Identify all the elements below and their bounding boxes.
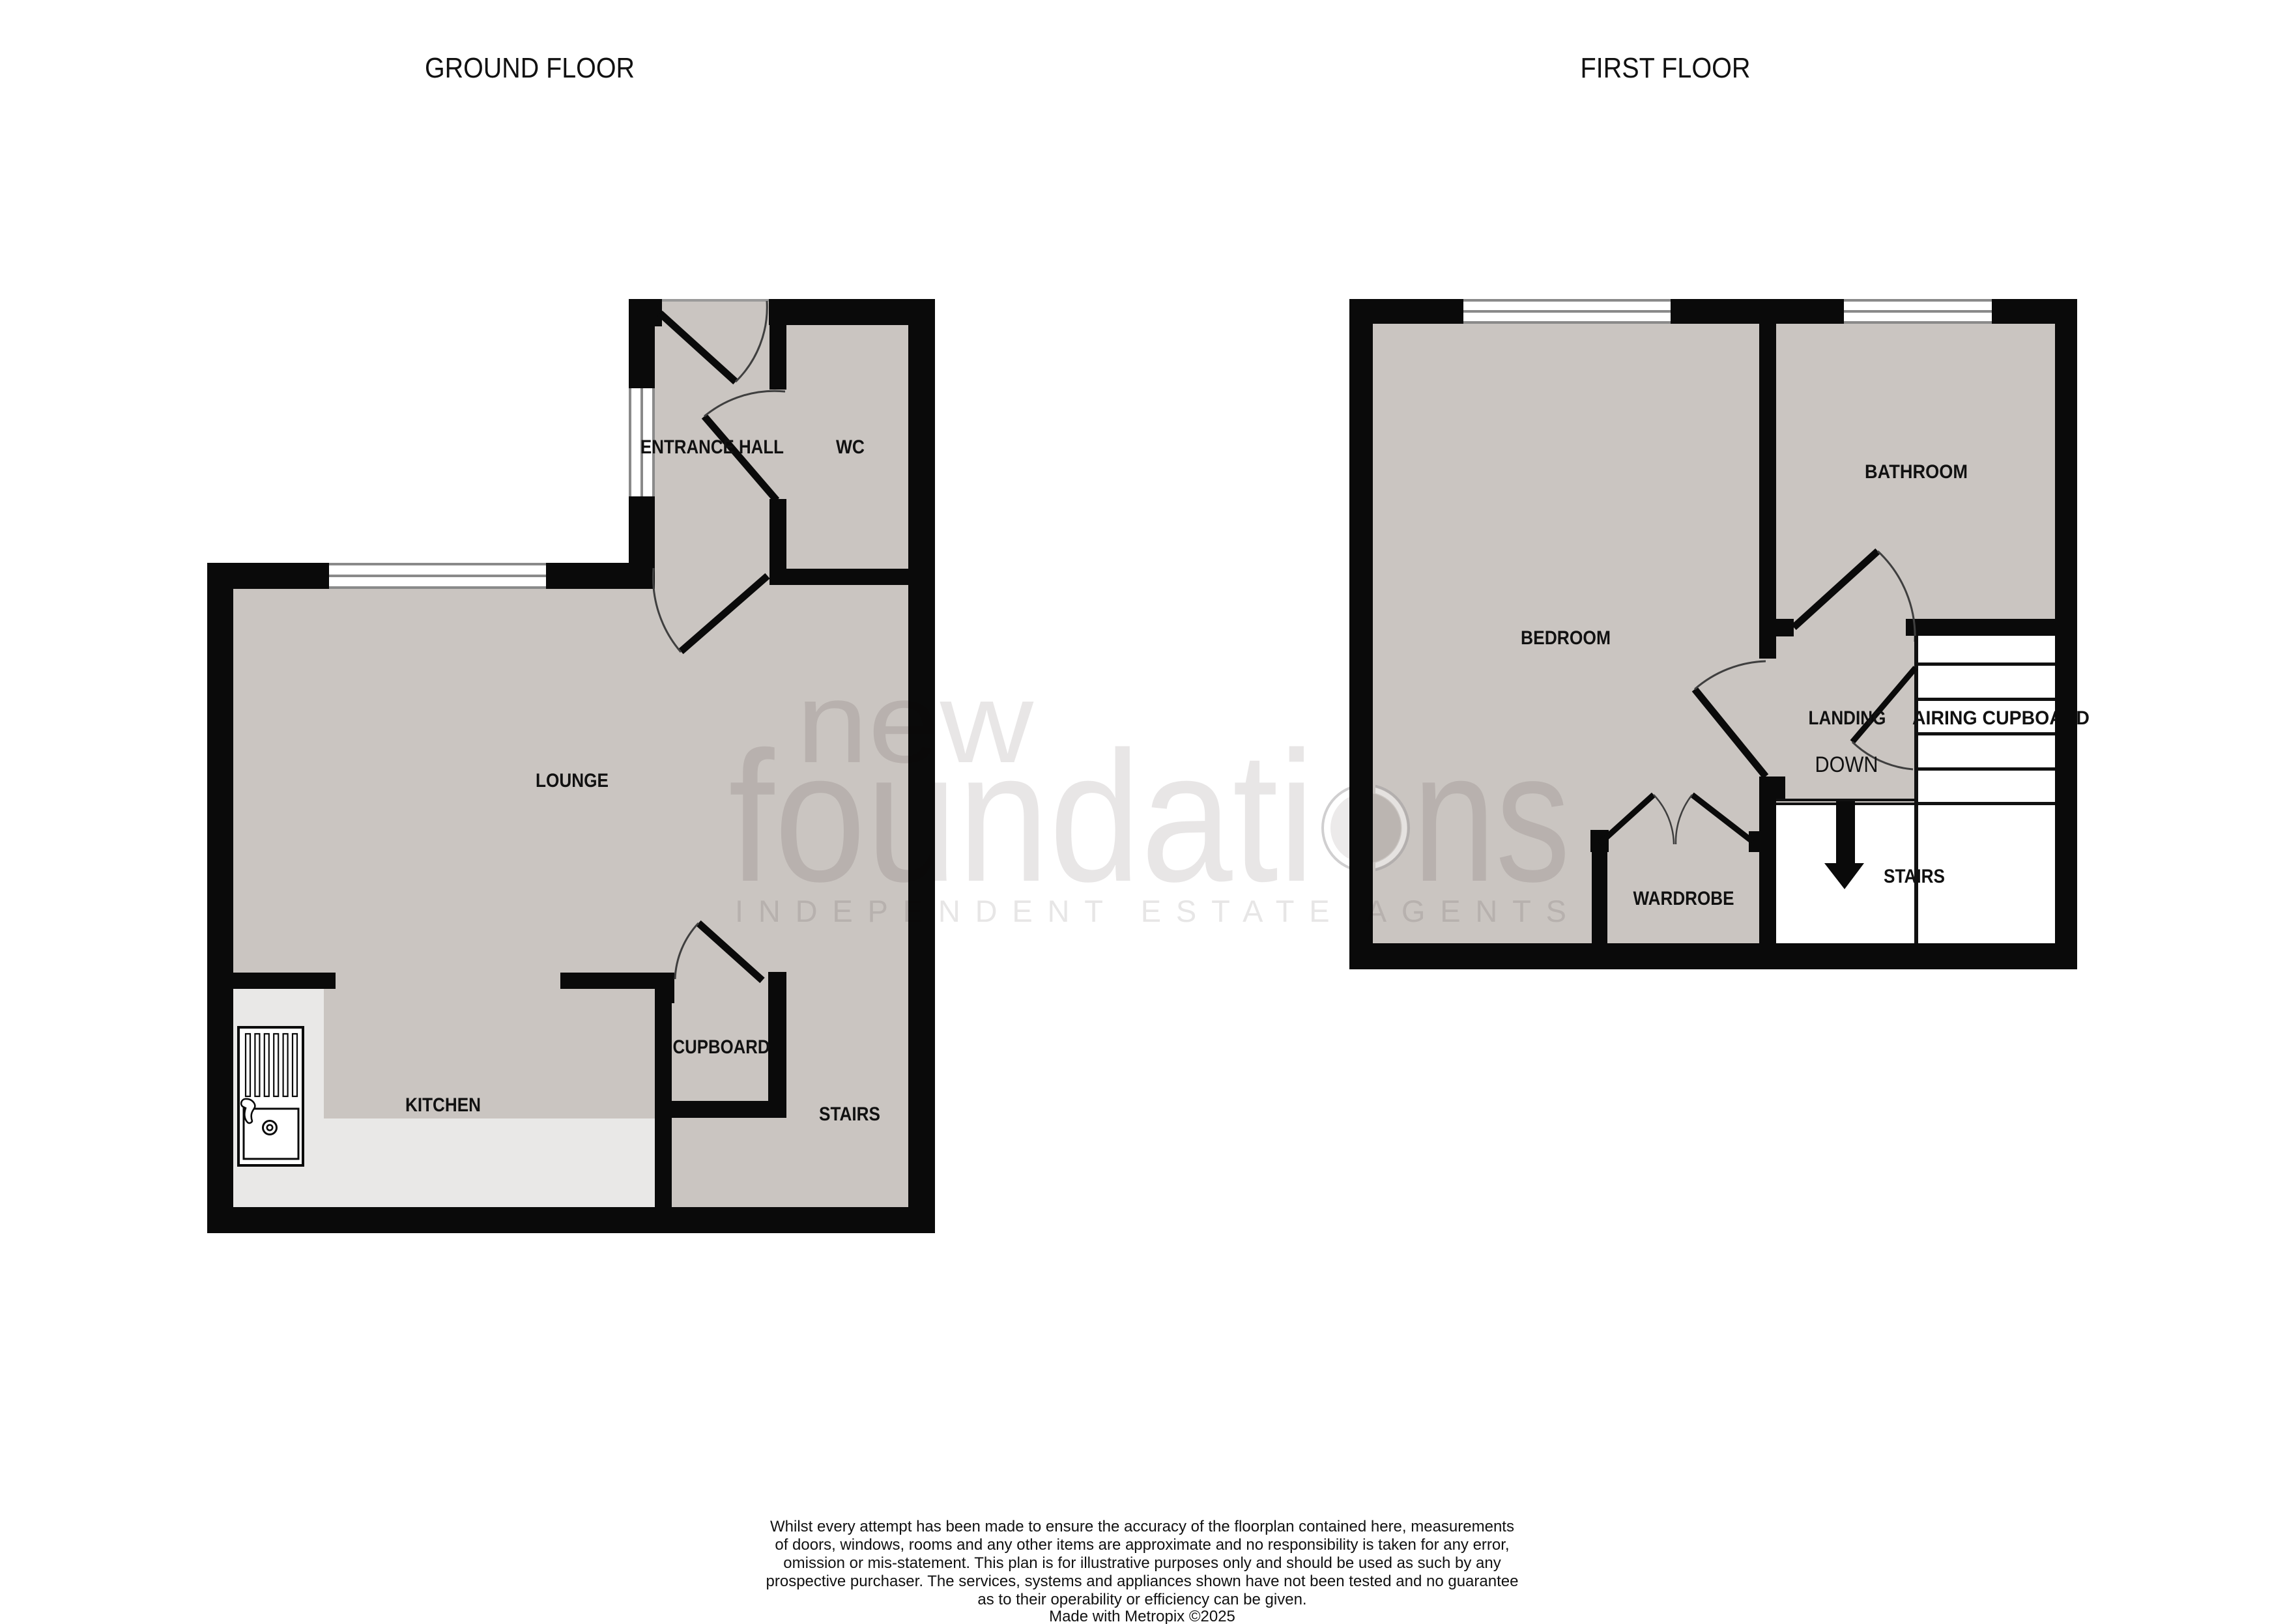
svg-text:prospective purchaser. The ser: prospective purchaser. The services, sys…	[766, 1573, 1519, 1590]
svg-text:DOWN: DOWN	[1815, 752, 1878, 777]
svg-text:BEDROOM: BEDROOM	[1521, 627, 1611, 649]
svg-text:FIRST FLOOR: FIRST FLOOR	[1581, 52, 1751, 84]
svg-text:GROUND FLOOR: GROUND FLOOR	[425, 52, 635, 84]
svg-text:as to their operability or eff: as to their operability or efficiency ca…	[977, 1591, 1306, 1608]
svg-text:STAIRS: STAIRS	[1884, 866, 1945, 887]
svg-text:omission or mis-statement. Thi: omission or mis-statement. This plan is …	[783, 1554, 1501, 1572]
svg-text:KITCHEN: KITCHEN	[405, 1094, 481, 1116]
svg-text:LANDING: LANDING	[1809, 707, 1886, 729]
svg-text:Whilst every attempt has been: Whilst every attempt has been made to en…	[770, 1518, 1514, 1535]
svg-text:WC: WC	[836, 436, 865, 458]
svg-text:foundati: foundati	[728, 713, 1315, 920]
svg-text:Made with Metropix ©2025: Made with Metropix ©2025	[1049, 1608, 1235, 1624]
svg-text:STAIRS: STAIRS	[819, 1104, 880, 1125]
svg-text:ENTRANCE HALL: ENTRANCE HALL	[640, 436, 784, 458]
svg-text:LOUNGE: LOUNGE	[536, 770, 609, 791]
svg-text:WARDROBE: WARDROBE	[1633, 888, 1734, 909]
svg-text:ns: ns	[1413, 713, 1570, 920]
svg-text:BATHROOM: BATHROOM	[1865, 461, 1968, 483]
svg-text:CUPBOARD: CUPBOARD	[673, 1036, 770, 1058]
svg-text:of doors, windows, rooms and a: of doors, windows, rooms and any other i…	[775, 1536, 1509, 1554]
